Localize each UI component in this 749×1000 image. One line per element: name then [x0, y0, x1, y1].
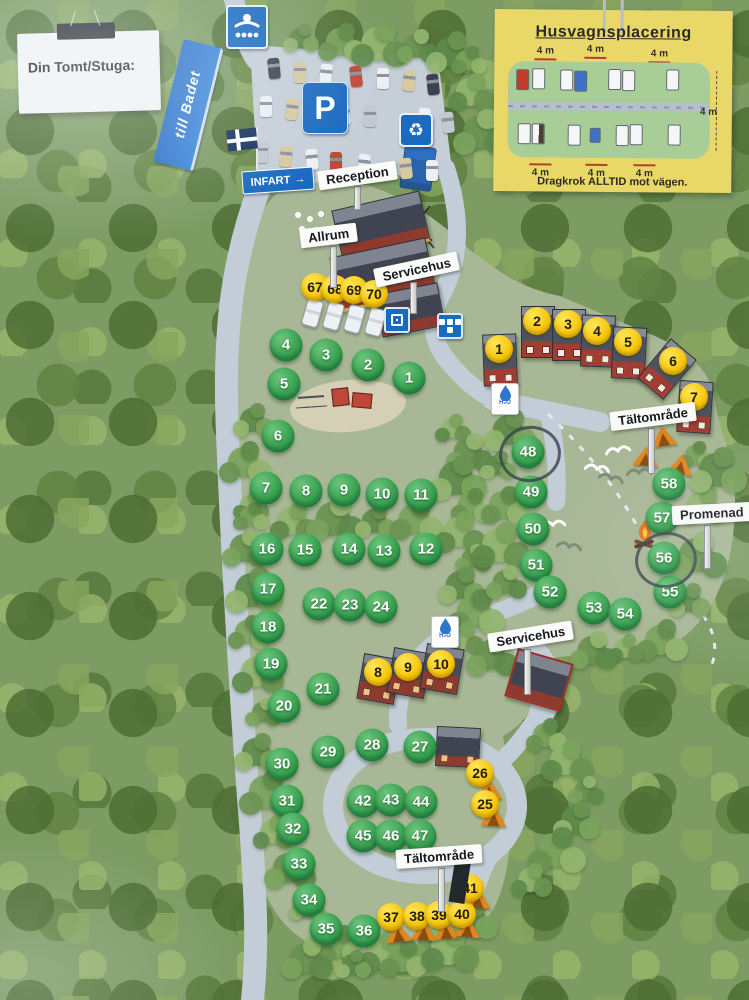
site-marker-green-23: 23	[334, 589, 367, 622]
site-marker-green-50: 50	[517, 513, 550, 546]
parked-car	[364, 106, 376, 127]
site-marker-green-2: 2	[352, 349, 385, 382]
site-marker-green-6: 6	[262, 420, 295, 453]
site-marker-yellow-9: 9	[394, 653, 422, 681]
caravan-icon	[574, 71, 587, 92]
caravan-icon	[532, 68, 545, 89]
site-marker-yellow-4: 4	[583, 317, 611, 345]
water-drop-icon	[499, 384, 512, 401]
caravan-icon	[622, 70, 635, 91]
caravan-icon	[516, 69, 529, 90]
infart-label: INFART	[250, 174, 290, 189]
caravan-icon	[630, 124, 643, 145]
legend-diagram	[508, 61, 711, 159]
parked-car	[260, 96, 272, 117]
site-marker-yellow-3: 3	[554, 310, 582, 338]
flag	[226, 127, 258, 151]
site-marker-green-53: 53	[578, 592, 611, 625]
sign-taltomrade-bottom: Tältområde	[396, 847, 482, 866]
legend-spacing-label: 4 m	[584, 44, 606, 59]
legend-footer: Dragkrok ALLTID mot vägen.	[493, 175, 731, 189]
parked-car	[402, 69, 416, 91]
site-marker-yellow-8: 8	[364, 658, 392, 686]
washing-machine-icon	[391, 314, 403, 326]
arrow-right-icon: →	[294, 173, 306, 186]
recycle-icon: ♻	[408, 121, 424, 139]
laundry-sign-2	[437, 313, 463, 339]
site-marker-green-15: 15	[289, 534, 322, 567]
washing-machine-icon	[447, 327, 453, 333]
site-marker-yellow-25: 25	[471, 790, 499, 818]
sign-servicehus-top: Servicehus	[374, 260, 459, 279]
swimmer-icon	[228, 7, 266, 47]
washing-machine-icon	[447, 319, 453, 325]
caravan-icon	[616, 125, 629, 146]
site-marker-green-36: 36	[348, 915, 381, 948]
water-label: H₂O	[499, 401, 511, 406]
site-marker-green-7: 7	[250, 472, 283, 505]
caravan-icon	[666, 69, 679, 90]
water-tap-sign-mid: H₂O	[431, 616, 459, 648]
site-marker-yellow-37: 37	[377, 903, 405, 931]
site-marker-green-44: 44	[405, 786, 438, 819]
site-marker-green-5: 5	[268, 368, 301, 401]
playground-climber	[351, 392, 372, 409]
parked-car	[349, 65, 363, 87]
site-marker-green-22: 22	[303, 588, 336, 621]
washing-machine-icon	[455, 319, 461, 325]
site-marker-yellow-10: 10	[427, 650, 455, 678]
site-marker-green-18: 18	[252, 611, 285, 644]
site-marker-green-43: 43	[375, 784, 408, 817]
site-marker-green-54: 54	[609, 598, 642, 631]
site-marker-green-21: 21	[307, 673, 340, 706]
caravan-icon	[532, 123, 545, 144]
parked-car	[285, 98, 299, 120]
site-marker-green-29: 29	[312, 736, 345, 769]
laundry-sign-1	[384, 307, 410, 333]
playground-slide	[331, 387, 350, 407]
legend-spacing-label-right: 4 m	[700, 107, 717, 118]
water-label: H₂O	[439, 634, 451, 639]
binder-clip-icon	[57, 22, 115, 40]
parking-sign: P	[302, 82, 348, 134]
caravan-icon	[608, 69, 621, 90]
site-marker-green-14: 14	[333, 533, 366, 566]
site-marker-green-9: 9	[328, 474, 361, 507]
legend-road	[508, 101, 710, 112]
site-marker-green-34: 34	[293, 884, 326, 917]
plot-note: Din Tomt/Stuga:	[17, 30, 161, 114]
caravan-icon	[590, 128, 601, 143]
site-marker-yellow-6: 6	[659, 347, 687, 375]
site-marker-green-11: 11	[405, 479, 438, 512]
swimming-sign	[226, 5, 268, 49]
site-marker-green-35: 35	[310, 913, 343, 946]
site-marker-green-24: 24	[365, 591, 398, 624]
legend-board: Husvagnsplacering 4 m 4 m 4 m 4 m 4 m 4 …	[493, 9, 733, 193]
legend-spacing-label: 4 m	[534, 45, 556, 60]
sign-taltomrade-right: Tältområde	[610, 407, 696, 426]
parked-car	[377, 68, 389, 89]
site-marker-green-17: 17	[252, 573, 285, 606]
caravan-icon	[560, 70, 573, 91]
parked-car	[426, 160, 438, 181]
parked-car	[441, 111, 455, 133]
caravan-icon	[568, 125, 581, 146]
site-marker-green-20: 20	[268, 690, 301, 723]
sign-promenad-label: Promenad	[672, 502, 749, 525]
water-drop-icon	[439, 617, 452, 634]
till-badet-label: till Badet	[171, 69, 203, 140]
legend-title: Husvagnsplacering	[495, 23, 733, 43]
site-marker-green-58: 58	[653, 468, 686, 501]
parked-car	[279, 145, 293, 167]
site-marker-green-33: 33	[283, 848, 316, 881]
site-marker-green-16: 16	[251, 533, 284, 566]
parked-car	[426, 73, 440, 95]
site-marker-green-28: 28	[356, 729, 389, 762]
site-marker-green-52: 52	[534, 576, 567, 609]
site-marker-green-4: 4	[270, 329, 303, 362]
water-tap-sign-right: H₂O	[491, 383, 519, 415]
parked-car	[399, 157, 413, 179]
parked-car	[267, 57, 281, 79]
caravan-icon	[518, 123, 531, 144]
site-marker-green-13: 13	[368, 535, 401, 568]
parking-letter: P	[314, 90, 335, 127]
site-marker-yellow-5: 5	[614, 328, 642, 356]
site-marker-green-8: 8	[290, 475, 323, 508]
site-marker-yellow-1: 1	[485, 335, 513, 363]
caravan-icon	[668, 124, 681, 145]
site-marker-green-12: 12	[410, 533, 443, 566]
sign-allrum-label: Allrum	[299, 223, 358, 249]
plot-note-label: Din Tomt/Stuga:	[28, 57, 135, 76]
site-marker-yellow-26: 26	[466, 759, 494, 787]
parked-car	[294, 62, 306, 83]
site-marker-green-32: 32	[277, 813, 310, 846]
sign-allrum: Allrum	[300, 226, 357, 245]
site-marker-green-19: 19	[255, 648, 288, 681]
site-marker-green-3: 3	[310, 339, 343, 372]
recycling-sign: ♻	[399, 113, 433, 147]
site-marker-yellow-40: 40	[448, 900, 476, 928]
site-marker-green-27: 27	[404, 731, 437, 764]
site-marker-green-10: 10	[366, 478, 399, 511]
sign-reception: Reception	[318, 166, 397, 185]
washing-machine-icon	[439, 319, 445, 325]
site-marker-green-30: 30	[266, 748, 299, 781]
sign-promenad: Promenad	[672, 504, 749, 523]
legend-spacing-label: 4 m	[648, 48, 670, 63]
sign-servicehus-mid: Servicehus	[488, 627, 573, 646]
site-marker-green-1: 1	[393, 362, 426, 395]
campsite-map: H₂O H₂O till Badet P ♻ INFART→ Reception	[0, 0, 749, 1000]
site-marker-yellow-2: 2	[523, 307, 551, 335]
